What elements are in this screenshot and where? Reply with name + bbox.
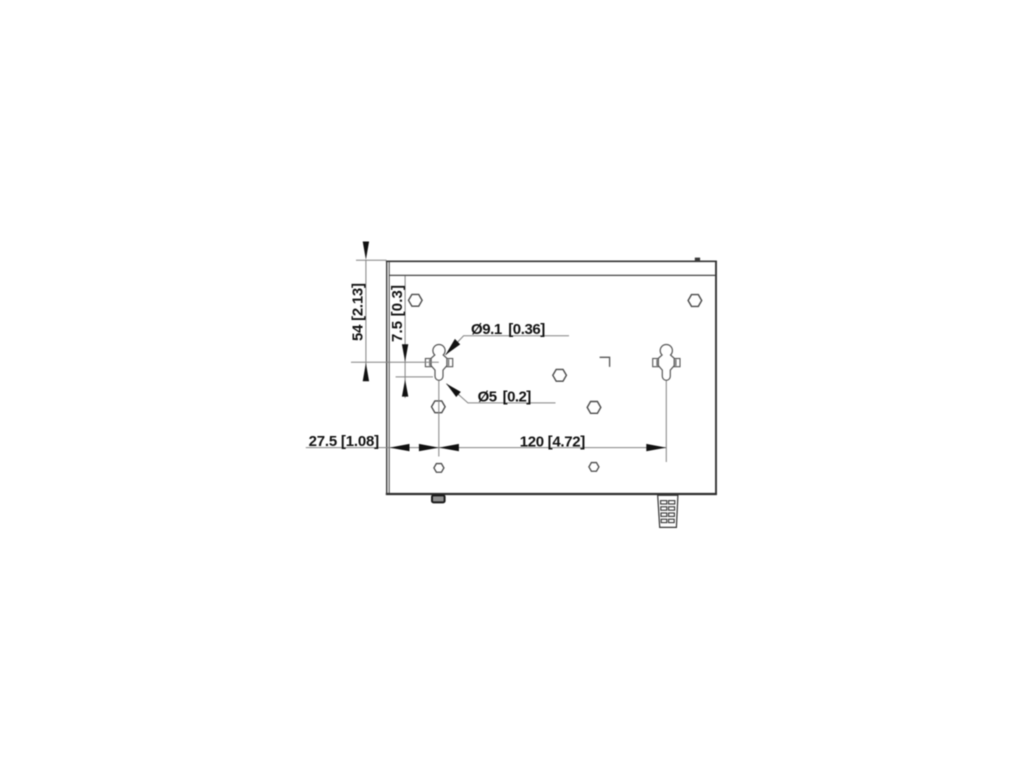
svg-text:7.5 [0.3]: 7.5 [0.3] (389, 285, 406, 342)
svg-text:27.5 [1.08]: 27.5 [1.08] (309, 433, 380, 450)
svg-text:Ø9.1 [0.36]: Ø9.1 [0.36] (471, 321, 545, 338)
svg-text:Ø5 [0.2]: Ø5 [0.2] (478, 389, 532, 406)
svg-text:54 [2.13]: 54 [2.13] (350, 283, 367, 341)
svg-text:120 [4.72]: 120 [4.72] (520, 433, 586, 450)
